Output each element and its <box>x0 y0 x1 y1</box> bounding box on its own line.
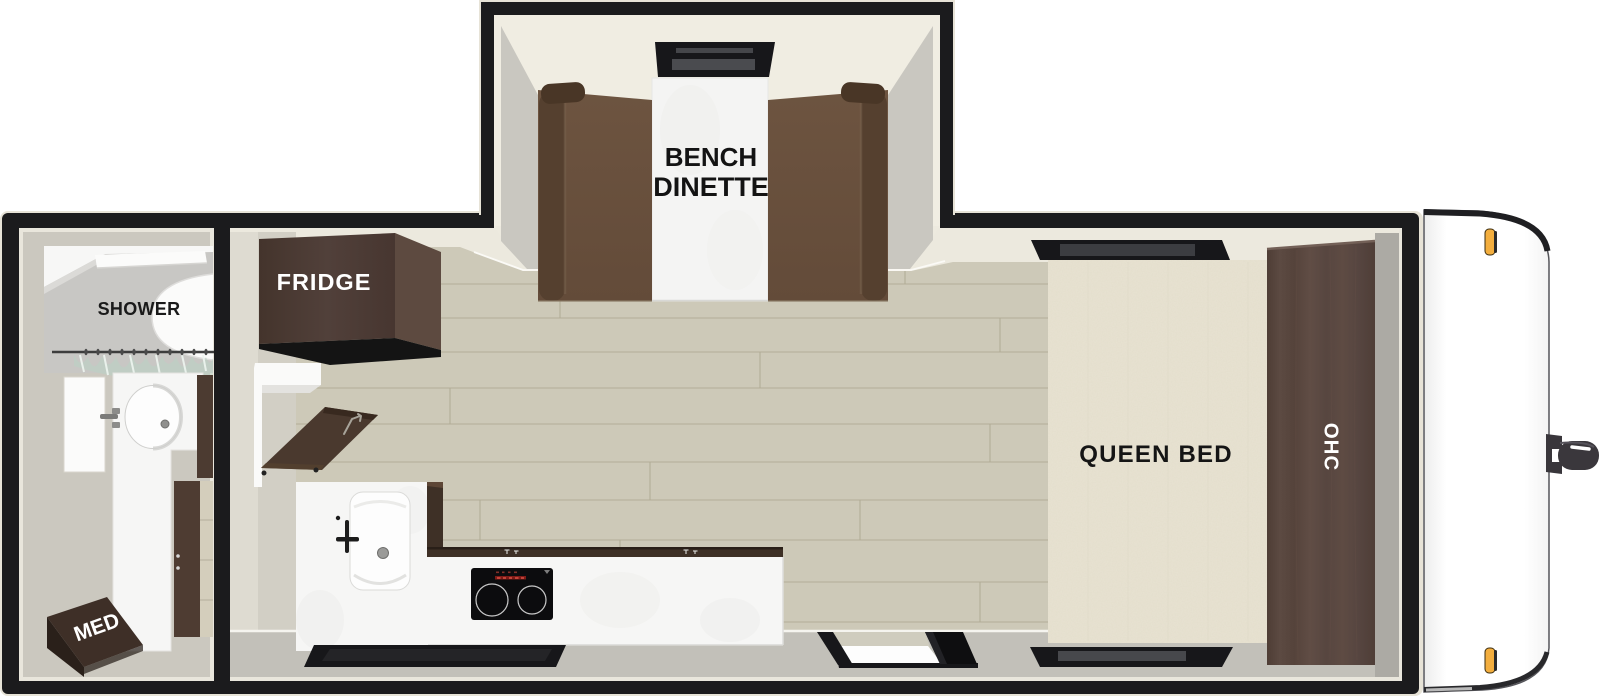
svg-text:QUEEN BED: QUEEN BED <box>1079 441 1233 468</box>
svg-text:OHC: OHC <box>1320 423 1343 472</box>
svg-text:BENCH: BENCH <box>665 142 757 172</box>
svg-text:FRIDGE: FRIDGE <box>277 269 372 295</box>
svg-text:DINETTE: DINETTE <box>653 172 769 202</box>
svg-text:SHOWER: SHOWER <box>98 299 181 319</box>
